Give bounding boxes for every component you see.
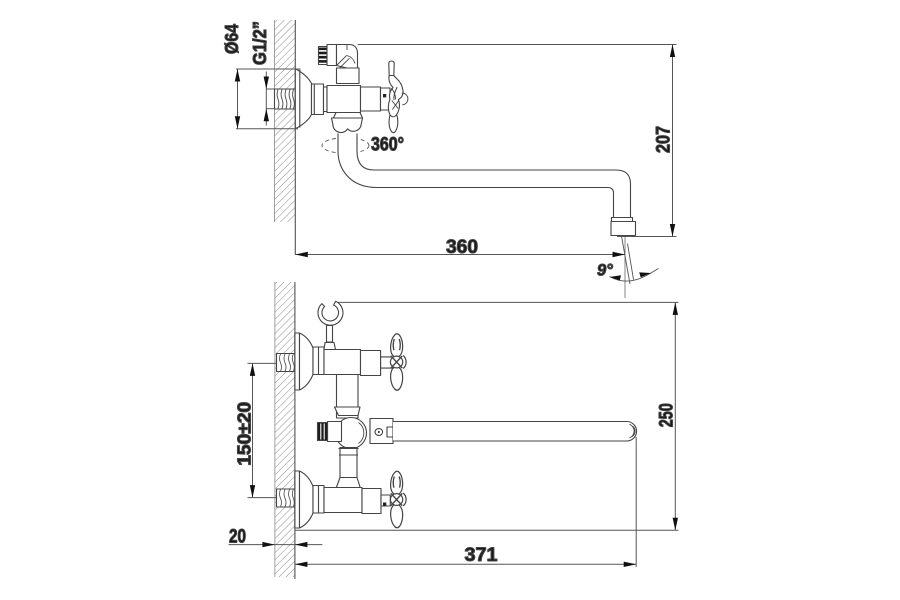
svg-text:250: 250: [657, 403, 678, 427]
svg-text:371: 371: [465, 545, 498, 566]
svg-text:9°: 9°: [597, 262, 613, 280]
svg-text:360°: 360°: [371, 135, 404, 156]
svg-text:20: 20: [229, 527, 246, 548]
svg-text:207: 207: [654, 126, 675, 153]
svg-text:Ø64: Ø64: [222, 24, 242, 54]
svg-text:G1/2”: G1/2”: [250, 21, 270, 65]
svg-text:360: 360: [446, 237, 478, 258]
svg-text:150±20: 150±20: [235, 402, 255, 466]
